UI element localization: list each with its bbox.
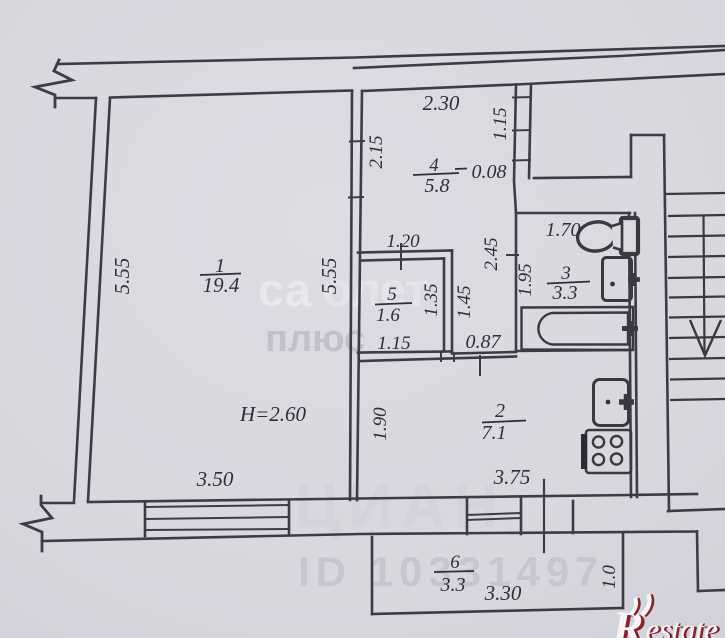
- svg-text:1.35: 1.35: [421, 283, 442, 316]
- svg-text:1.70: 1.70: [546, 219, 581, 241]
- svg-text:estate: estate: [646, 612, 719, 638]
- svg-text:19.4: 19.4: [203, 273, 240, 297]
- svg-text:2.30: 2.30: [423, 91, 460, 115]
- svg-text:6: 6: [450, 552, 460, 573]
- svg-text:1.45: 1.45: [454, 285, 475, 318]
- svg-text:0.08: 0.08: [472, 161, 507, 183]
- svg-text:5.55: 5.55: [110, 258, 134, 295]
- svg-text:2: 2: [495, 400, 505, 422]
- svg-text:1.90: 1.90: [370, 407, 391, 441]
- svg-text:2.45: 2.45: [481, 237, 502, 270]
- svg-text:3.3: 3.3: [552, 282, 578, 304]
- svg-text:1.15: 1.15: [377, 333, 410, 354]
- svg-text:3.50: 3.50: [196, 467, 234, 491]
- svg-text:1.15: 1.15: [490, 107, 511, 140]
- svg-text:1.0: 1.0: [599, 565, 620, 589]
- svg-text:3.3: 3.3: [440, 574, 466, 596]
- svg-text:7.1: 7.1: [482, 422, 507, 444]
- svg-text:3: 3: [560, 263, 571, 284]
- svg-text:0.87: 0.87: [466, 331, 502, 353]
- svg-text:3.30: 3.30: [484, 581, 522, 605]
- svg-text:са: са: [258, 263, 312, 316]
- svg-text:1.20: 1.20: [386, 231, 420, 252]
- svg-text:4: 4: [429, 155, 439, 176]
- svg-text:5.8: 5.8: [425, 175, 450, 197]
- svg-text:5.55: 5.55: [317, 258, 341, 295]
- svg-text:3.75: 3.75: [493, 465, 531, 489]
- svg-text:1.95: 1.95: [515, 263, 536, 296]
- svg-text:ЦИАН: ЦИАН: [295, 472, 506, 541]
- svg-text:1.6: 1.6: [376, 305, 400, 326]
- svg-text:2.15: 2.15: [366, 135, 387, 168]
- svg-text:H=2.60: H=2.60: [239, 402, 307, 426]
- svg-text:5: 5: [387, 284, 397, 305]
